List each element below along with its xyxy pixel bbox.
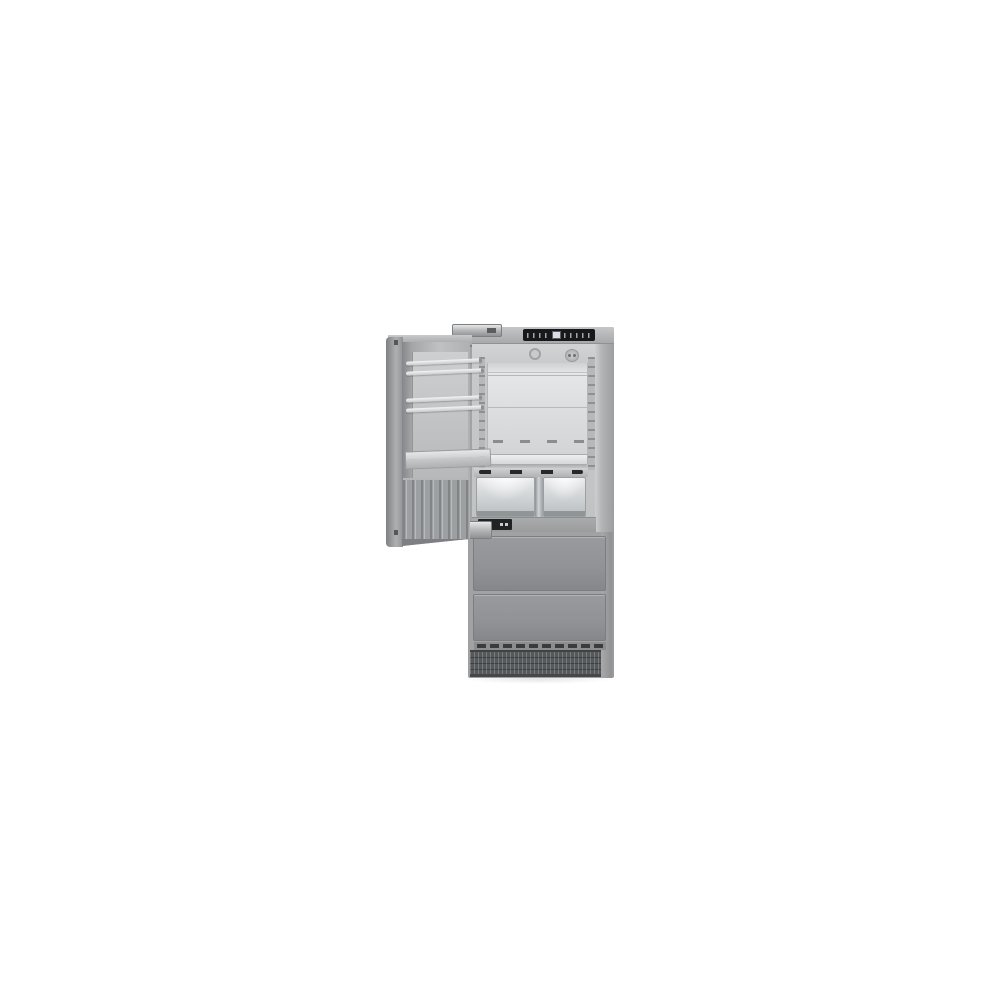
door-ribbed-panel	[403, 478, 469, 540]
brand-badge-icon	[529, 348, 541, 360]
fan-vent-icon	[565, 349, 579, 362]
base-slot-row	[474, 642, 606, 650]
back-panel-header	[488, 363, 587, 373]
freezer-drawer-bottom	[473, 594, 606, 641]
control-icons-right-icon	[564, 333, 591, 338]
product-photo	[0, 0, 1000, 1000]
freezer-drawer-top	[473, 536, 606, 591]
door-bottom-edge	[402, 539, 470, 546]
crisper-drawer-left	[476, 477, 535, 517]
base-slots	[477, 644, 603, 648]
crisper-shelf-rail	[474, 468, 588, 477]
crisper-drawer-right	[543, 477, 586, 517]
control-panel	[523, 329, 595, 341]
cabinet-right-wall	[595, 344, 614, 532]
crisper-clips	[479, 470, 583, 474]
shelf-line-1	[488, 375, 587, 376]
door-outer-edge	[386, 337, 403, 547]
temperature-display	[552, 331, 561, 339]
shelf-rail-right	[588, 357, 595, 470]
crisper-divider	[535, 477, 543, 517]
control-icons-left-icon	[527, 333, 549, 338]
shelf-clips	[493, 440, 585, 443]
bottom-glass-shelf	[488, 454, 587, 464]
door-shelf	[405, 449, 492, 470]
shelf-line-2	[488, 407, 587, 408]
ventilation-grille	[470, 650, 601, 677]
interior-back-panel	[487, 363, 588, 464]
